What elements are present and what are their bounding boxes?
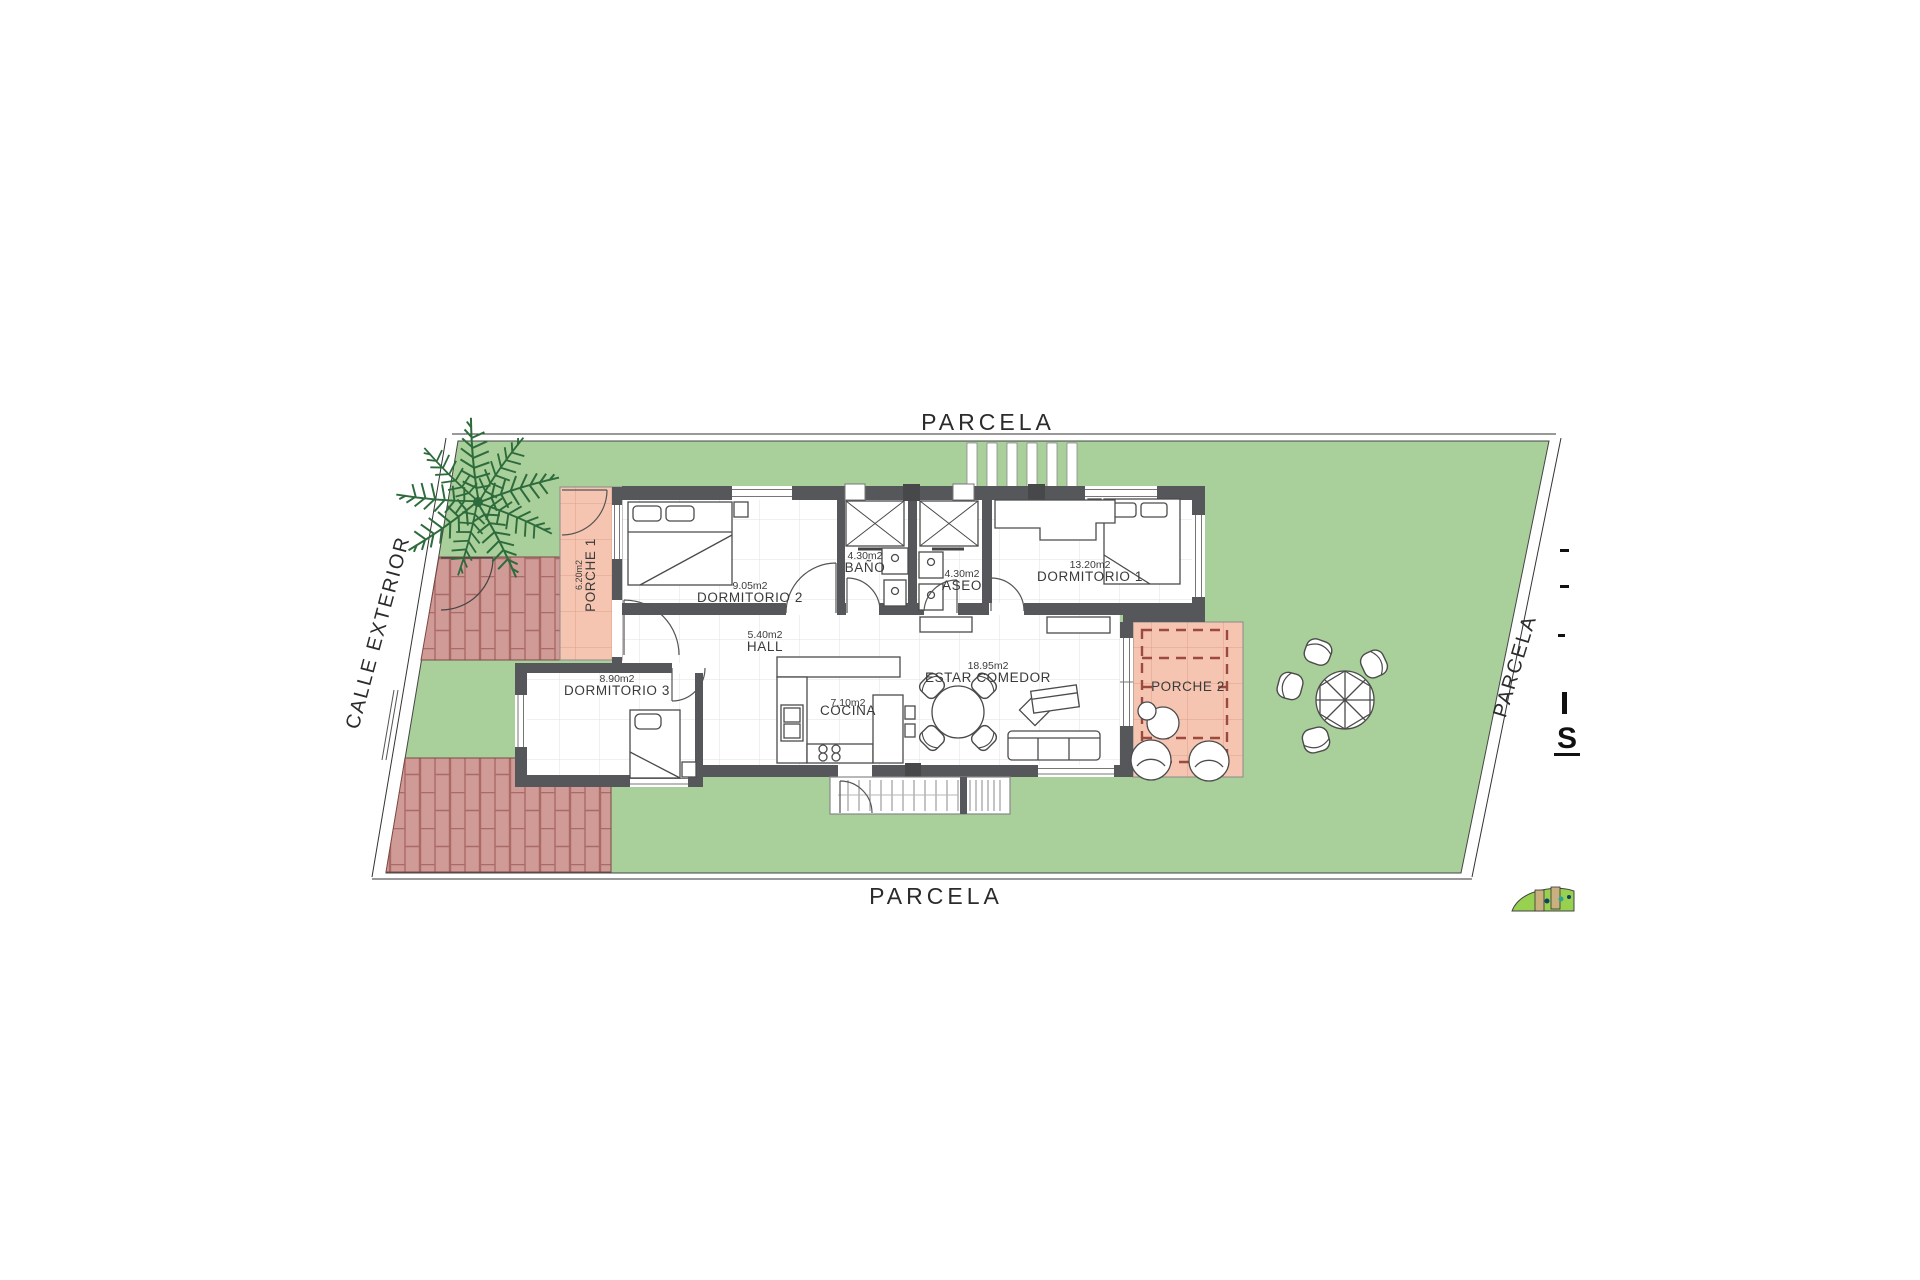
room-label-hall: 5.40m2 HALL	[747, 629, 783, 654]
sofa	[1008, 731, 1100, 760]
garden-table-parasol	[1316, 671, 1374, 729]
shower-bano	[846, 501, 904, 549]
window-dormitorio1-north	[1085, 486, 1157, 500]
room-label-aseo: 4.30m2 ASEO	[942, 568, 982, 593]
window-estar-south	[1038, 765, 1114, 777]
bed-dormitorio2	[628, 502, 748, 585]
svg-text:DORMITORIO 3: DORMITORIO 3	[564, 683, 670, 698]
svg-text:DORMITORIO 2: DORMITORIO 2	[697, 590, 803, 605]
window-dormitorio1-east	[1192, 515, 1205, 597]
hob-burner	[819, 745, 827, 753]
door-gap-bano	[846, 603, 879, 615]
window-dormitorio2-north	[732, 486, 792, 500]
label-parcela-top: PARCELA	[921, 409, 1055, 435]
window-dormitorio2-west	[612, 505, 622, 559]
shower-aseo	[920, 501, 978, 549]
door-gap-dormitorio3	[672, 663, 703, 673]
door-gap-entrance	[612, 600, 622, 657]
label-calle-exterior: CALLE EXTERIOR	[342, 533, 415, 731]
corridor-console	[1047, 617, 1110, 633]
svg-text:ASEO: ASEO	[942, 578, 982, 593]
edge-text-fragments: S	[1554, 549, 1580, 756]
toilet-bano	[884, 580, 906, 606]
dining-table	[932, 686, 984, 738]
toilet-aseo	[919, 584, 943, 610]
svg-text:PORCHE 2: PORCHE 2	[1151, 679, 1225, 694]
fragment-i-bar	[1562, 692, 1567, 714]
window-dormitorio3-west	[515, 695, 527, 747]
svg-text:HALL: HALL	[747, 639, 783, 654]
floor-plan-drawing: PARCELA PARCELA PARCELA CALLE EXTERIOR 6…	[0, 0, 1920, 1280]
window-aseo-north	[953, 484, 974, 500]
label-parcela-bottom: PARCELA	[869, 883, 1003, 909]
room-label-bano: 4.30m2 BAÑO	[845, 550, 886, 575]
floor-plan-page: PARCELA PARCELA PARCELA CALLE EXTERIOR 6…	[0, 0, 1920, 1280]
logo-fragment	[1512, 887, 1574, 911]
svg-text:PORCHE 1: PORCHE 1	[583, 538, 598, 612]
svg-text:COCINA: COCINA	[820, 703, 876, 718]
room-label-porche2: PORCHE 2	[1151, 679, 1225, 694]
exterior-stairs	[830, 777, 1010, 814]
door-gap-dormitorio1	[989, 603, 1024, 615]
sink-aseo	[919, 552, 943, 578]
sliding-door-estar-porche2	[1120, 638, 1133, 726]
hall-console	[920, 617, 972, 632]
svg-text:ESTAR COMEDOR: ESTAR COMEDOR	[925, 670, 1051, 685]
sink-bano	[882, 548, 908, 574]
svg-text:DORMITORIO 1: DORMITORIO 1	[1037, 569, 1143, 584]
door-gap-stairs	[838, 765, 872, 777]
svg-text:BAÑO: BAÑO	[845, 560, 886, 575]
window-bano-north	[845, 484, 865, 500]
fragment-s: S	[1557, 722, 1577, 755]
curb-line	[382, 690, 398, 760]
